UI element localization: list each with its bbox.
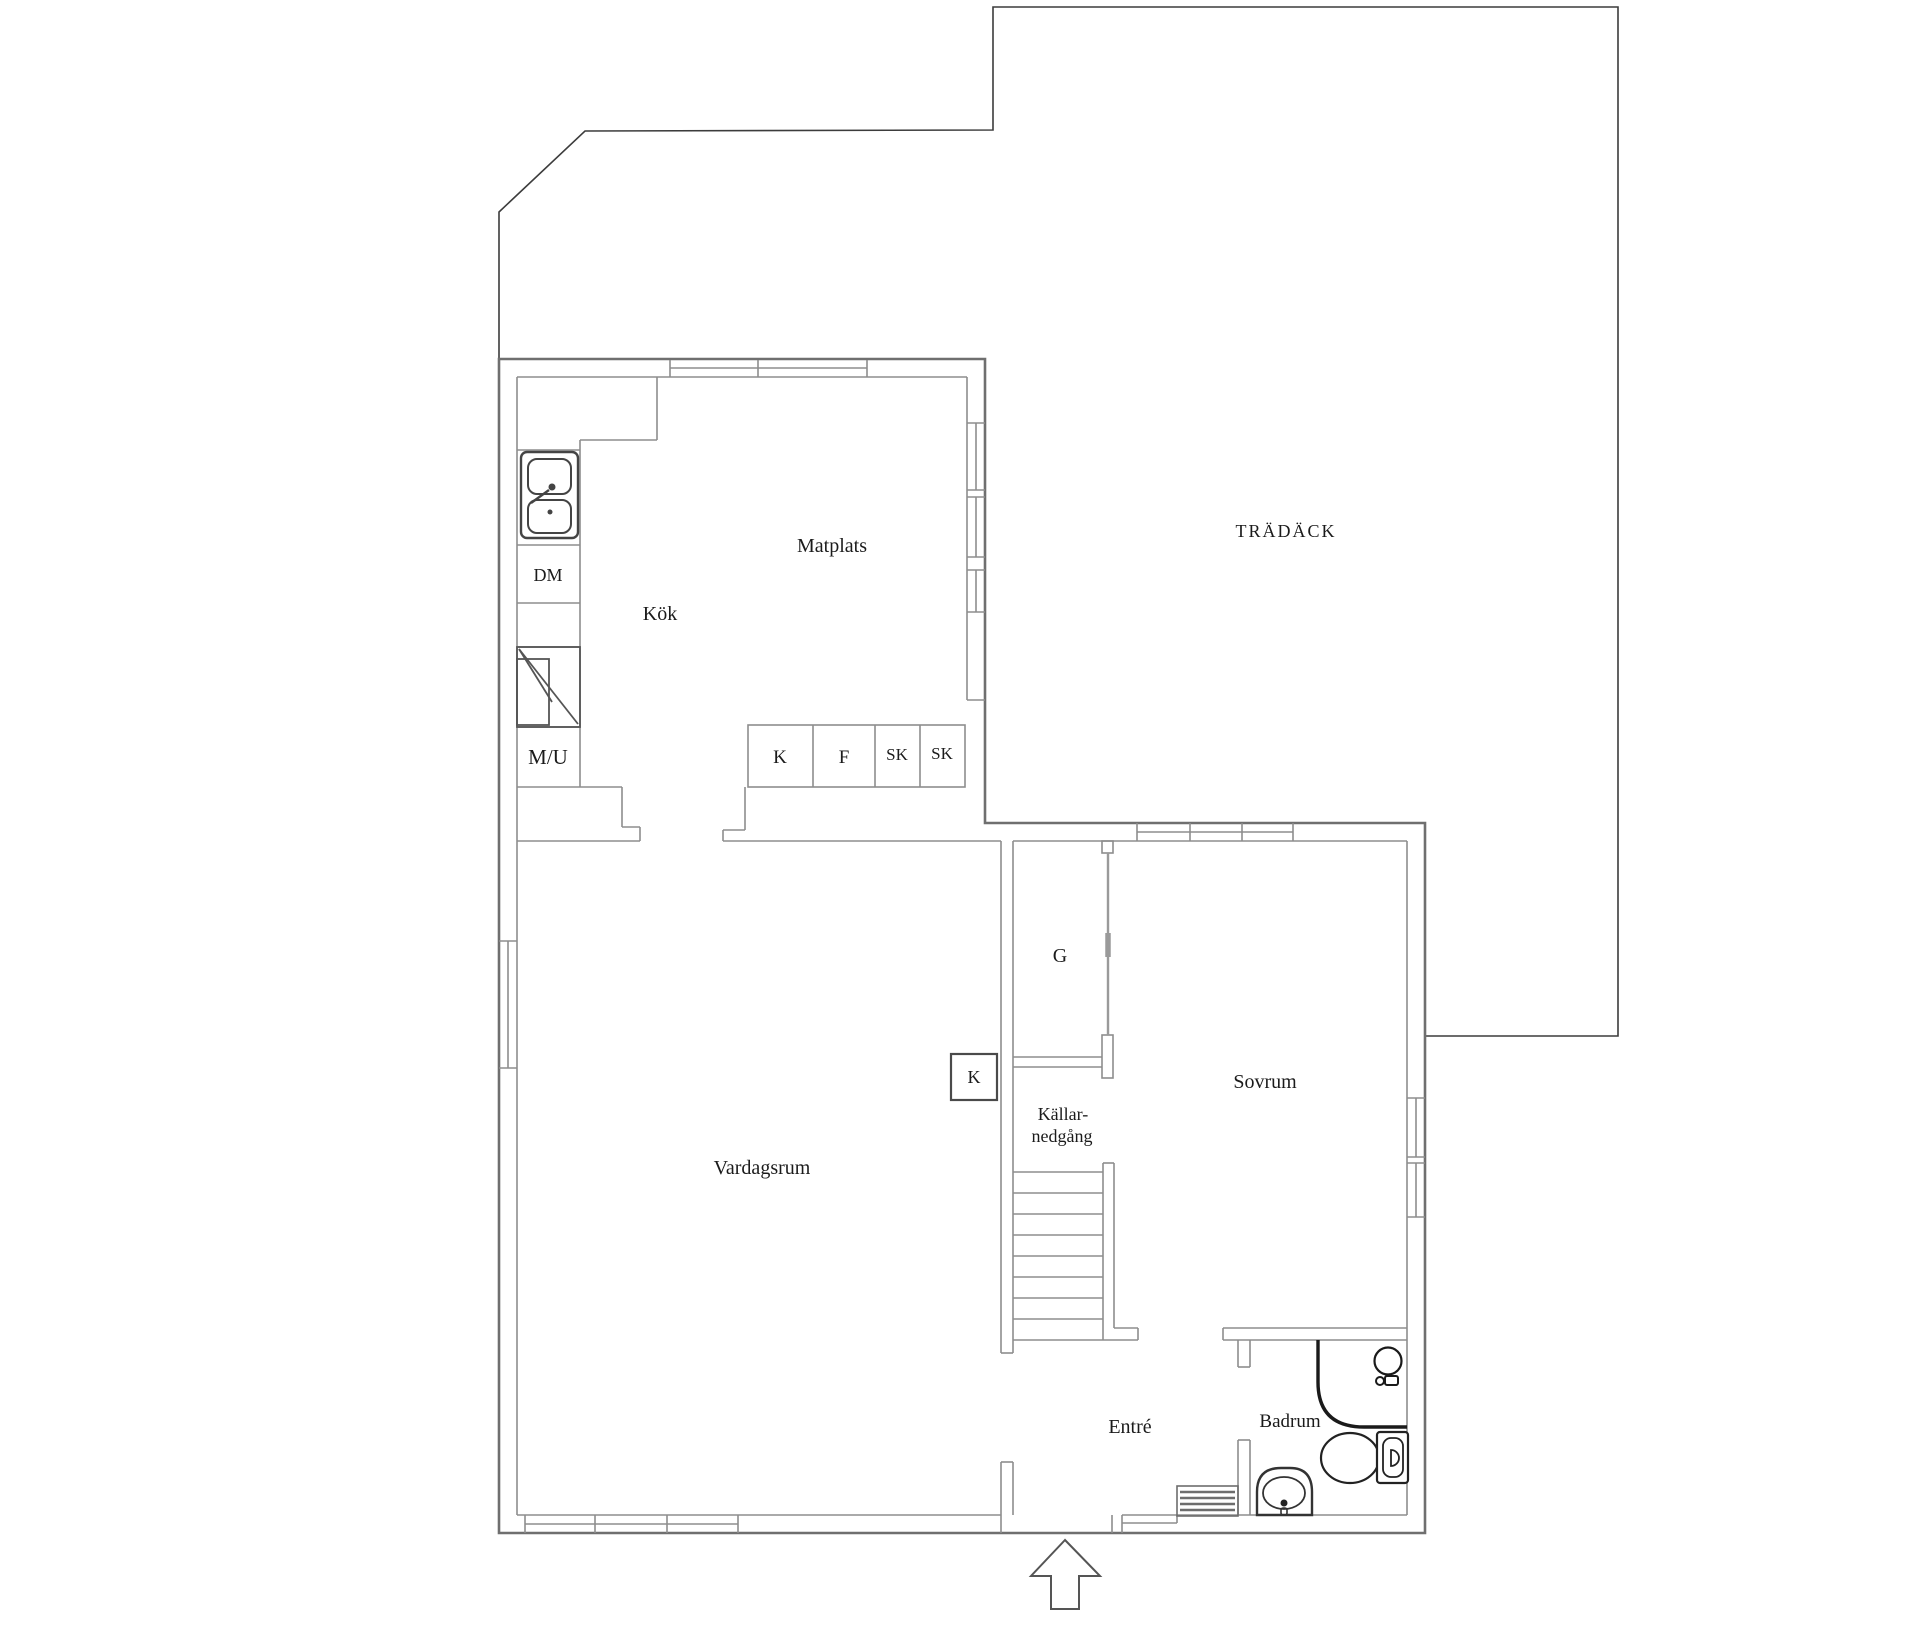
label-cabinet-k: K <box>773 747 787 768</box>
label-cabinet-f: F <box>839 747 850 768</box>
deck-outline <box>499 7 1618 1036</box>
washbasin <box>1257 1468 1312 1515</box>
label-bedroom: Sovrum <box>1233 1071 1297 1093</box>
floor-plan-page: TRÄDÄCK Matplats Kök DM M/U K F SK SK G … <box>0 0 1920 1625</box>
label-micro-oven: M/U <box>528 745 568 769</box>
kitchen-living-wall <box>517 787 1001 841</box>
label-deck: TRÄDÄCK <box>1235 521 1336 541</box>
floor-plan-drawing: TRÄDÄCK Matplats Kök DM M/U K F SK SK G … <box>0 0 1920 1625</box>
label-dishwasher: DM <box>533 565 562 585</box>
basement-stairs <box>1013 1172 1103 1319</box>
entry-door-jambs <box>1001 1462 1177 1533</box>
label-living: Vardagsrum <box>714 1157 811 1179</box>
oven-symbol <box>517 647 580 727</box>
label-dining: Matplats <box>797 535 867 557</box>
label-basement-2: nedgång <box>1032 1126 1093 1146</box>
label-basement-1: Källar- <box>1038 1104 1089 1124</box>
toilet <box>1321 1432 1408 1483</box>
label-kitchen: Kök <box>643 603 677 625</box>
label-bathroom: Badrum <box>1259 1411 1320 1432</box>
label-closet-k: K <box>968 1067 981 1087</box>
shower <box>1318 1340 1407 1427</box>
label-entry: Entré <box>1108 1416 1151 1438</box>
label-cabinet-sk1: SK <box>886 745 908 764</box>
label-cabinet-sk2: SK <box>931 744 953 763</box>
kitchen-sink <box>521 452 578 538</box>
entry-grate <box>1177 1486 1238 1516</box>
label-wardrobe-g: G <box>1053 945 1067 967</box>
stair-closet-walls <box>1001 841 1138 1353</box>
entrance-arrow <box>1031 1540 1100 1609</box>
